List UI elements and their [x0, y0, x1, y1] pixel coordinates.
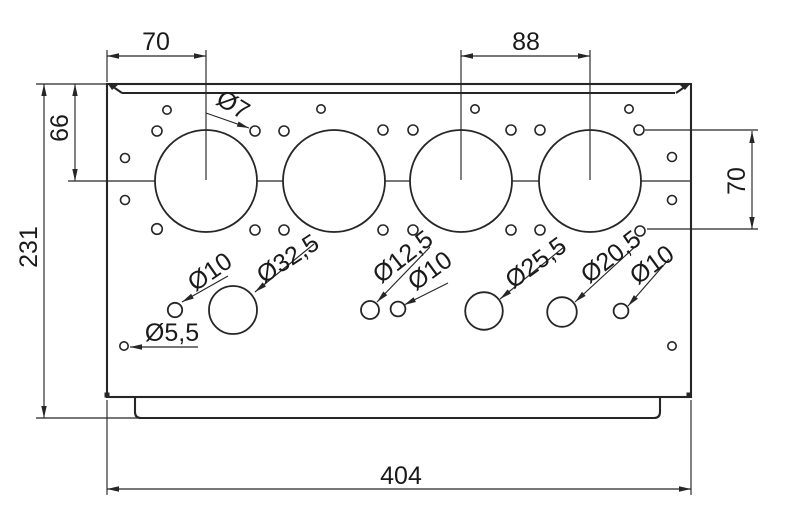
dimension-arrow-2: [679, 486, 691, 491]
dimension-arrow-2: [72, 169, 77, 181]
hole: [168, 303, 182, 317]
hole: [506, 225, 516, 235]
hole: [361, 301, 379, 319]
hole: [471, 105, 479, 113]
dim-404-bottom: 404: [107, 400, 691, 495]
hole: [547, 297, 577, 327]
hole: [279, 225, 289, 235]
bottom-lip: [135, 397, 660, 418]
leader-dia-10-a: Ø10: [182, 247, 237, 302]
holes: [120, 105, 677, 350]
hole: [535, 125, 545, 135]
leader-label: Ø32,5: [252, 229, 324, 290]
hole: [391, 302, 406, 317]
dimension-arrow-1: [72, 84, 77, 96]
hole: [535, 225, 545, 235]
hole: [668, 196, 677, 205]
hole: [614, 304, 629, 319]
hole: [209, 286, 257, 334]
leader-dia-5-5: Ø5,5: [130, 319, 199, 350]
dim-88-top: 88: [461, 28, 590, 180]
dimension-arrow-2: [194, 53, 206, 58]
leader-dia-32-5: Ø32,5: [252, 229, 324, 292]
leader-arrow: [404, 297, 416, 305]
leader-label: Ø7: [211, 84, 254, 125]
dimension-label: 404: [380, 462, 422, 490]
leader-label: Ø25,5: [500, 232, 572, 295]
leader-arrow: [130, 344, 142, 349]
hole: [506, 125, 516, 135]
dim-70-right: 70: [645, 130, 758, 229]
dimension-label: 231: [15, 226, 43, 268]
hole: [279, 126, 289, 136]
cylinder-bore-2: [283, 130, 385, 232]
hole: [408, 125, 418, 135]
leader-label: Ø10: [183, 247, 238, 297]
edge-corner-tick-1: [105, 393, 110, 398]
dimension-arrow-1: [41, 84, 46, 96]
dimension-label: 70: [142, 28, 170, 56]
dimension-arrow-2: [749, 217, 754, 229]
leader-label: Ø5,5: [145, 319, 199, 347]
dimension-arrow-1: [749, 131, 754, 143]
hole: [634, 125, 644, 135]
dimension-arrow-2: [41, 406, 46, 418]
hole: [250, 126, 260, 136]
hole: [625, 105, 633, 113]
hole: [152, 224, 163, 235]
dimension-arrow-2: [578, 53, 590, 58]
leader-dia-25-5: Ø25,5: [500, 232, 572, 299]
leader-arrow: [182, 294, 194, 302]
hole: [668, 153, 677, 162]
hole: [163, 106, 171, 114]
dimension-label: 88: [512, 28, 540, 56]
hole: [250, 225, 260, 235]
dimension-label: 66: [46, 114, 74, 142]
dim-70-top-left: 70: [107, 28, 206, 180]
dimension-arrow-1: [107, 53, 119, 58]
dimension-arrow-1: [107, 486, 119, 491]
dim-66-left: 66: [36, 84, 107, 181]
hole: [317, 105, 325, 113]
dim-231-left: 231: [15, 84, 141, 418]
technical-drawing: 70886623170404Ø7Ø10Ø32,5Ø5,5Ø12,5Ø10Ø25,…: [0, 0, 800, 526]
hole: [120, 342, 128, 350]
hole: [465, 292, 503, 330]
hole: [121, 196, 130, 205]
dimension-label: 70: [723, 167, 751, 195]
hole: [378, 125, 388, 135]
dimension-arrow-1: [461, 53, 473, 58]
drawing-svg: 70886623170404Ø7Ø10Ø32,5Ø5,5Ø12,5Ø10Ø25,…: [0, 0, 800, 526]
hole: [121, 154, 130, 163]
hole: [152, 126, 162, 136]
edge-corner-tick-2: [687, 393, 692, 398]
leader-dia-7: Ø7: [206, 84, 255, 128]
hole: [378, 225, 388, 235]
hole: [668, 342, 676, 350]
